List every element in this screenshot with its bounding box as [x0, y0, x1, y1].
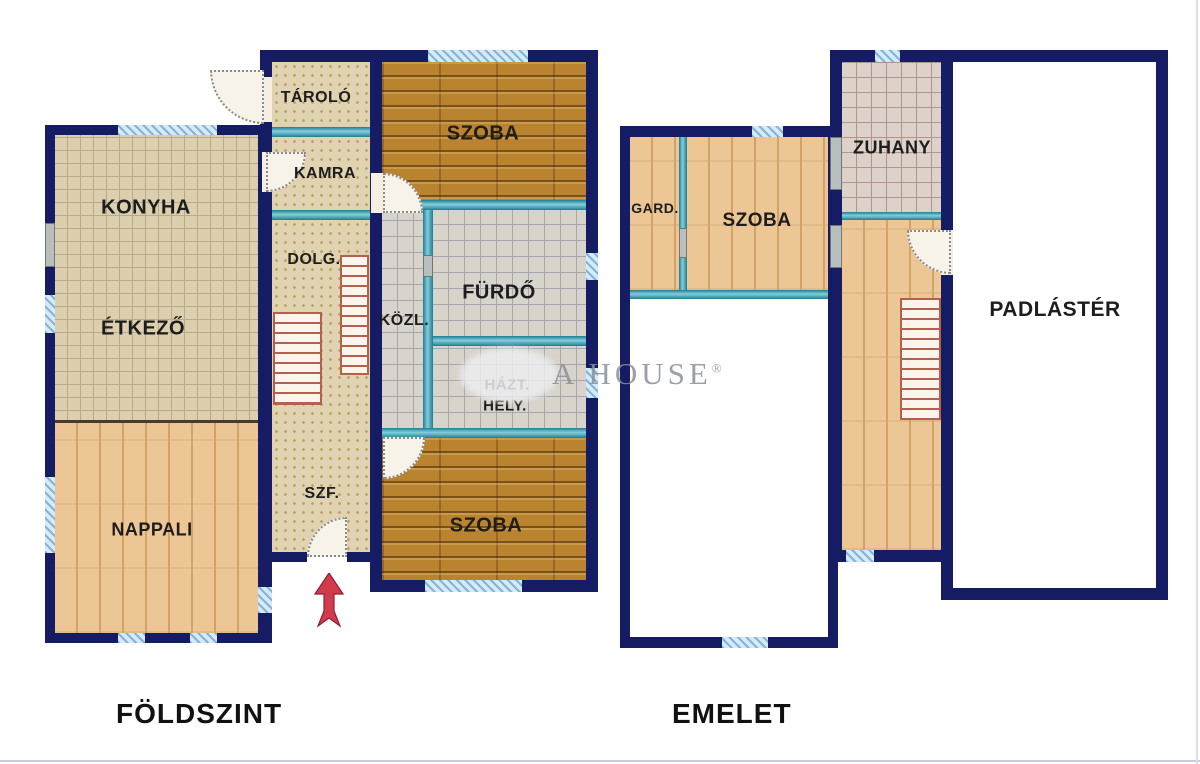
- watermark-text: A HOUSE: [552, 356, 712, 391]
- room-padlaster-floor: [953, 62, 1156, 588]
- room-label-tarolo: TÁROLÓ: [281, 89, 352, 107]
- staircase: [900, 298, 941, 420]
- wall: [260, 50, 272, 562]
- wall: [941, 50, 953, 600]
- window: [586, 253, 598, 280]
- window: [846, 550, 874, 562]
- window: [875, 50, 900, 62]
- window: [722, 637, 768, 648]
- room-konyha-etkezo-floor: [55, 135, 258, 423]
- door-swing-entrance-top: [210, 70, 264, 124]
- floor-title-emelet: EMELET: [672, 698, 792, 730]
- room-label-szoba-top: SZOBA: [447, 123, 520, 146]
- door-jamb: [830, 137, 842, 190]
- bottom-divider: [0, 760, 1200, 762]
- room-label-etkezo: ÉTKEZŐ: [101, 318, 185, 341]
- room-label-padlaster: PADLÁSTÉR: [989, 298, 1120, 322]
- room-furdo-floor: [433, 210, 586, 336]
- wall: [347, 552, 383, 562]
- partition-wall: [842, 212, 941, 220]
- door-jamb: [830, 225, 842, 268]
- wall: [45, 125, 55, 643]
- wall: [830, 50, 842, 562]
- wall: [1156, 50, 1168, 600]
- entrance-arrow-icon: [314, 573, 344, 628]
- door-opening: [371, 173, 383, 213]
- watermark-blob: [460, 348, 558, 402]
- room-label-furdo: FÜRDŐ: [462, 282, 536, 305]
- floor-title-foldszint: FÖLDSZINT: [116, 698, 282, 730]
- room-label-konyha: KONYHA: [101, 197, 191, 220]
- window: [45, 295, 55, 333]
- window: [428, 50, 528, 62]
- room-label-szf: SZF.: [305, 485, 340, 503]
- window: [118, 633, 145, 643]
- floor-plan-canvas: KONYHA ÉTKEZŐ NAPPALI TÁROLÓ KAMRA DOLG.…: [0, 0, 1200, 764]
- door-jamb: [423, 255, 433, 277]
- wall: [941, 588, 1168, 600]
- wall: [586, 50, 598, 592]
- watermark: A HOUSE®: [552, 356, 722, 392]
- wall: [620, 126, 838, 137]
- door-jamb: [679, 228, 687, 258]
- room-label-szoba-bottom: SZOBA: [450, 515, 523, 538]
- window: [118, 125, 217, 135]
- wall: [941, 50, 1168, 62]
- partition-wall: [679, 137, 687, 290]
- right-divider: [1196, 0, 1198, 764]
- wall: [260, 50, 383, 62]
- room-label-zuhany: ZUHANY: [853, 138, 931, 159]
- room-label-dolg: DOLG.: [287, 251, 340, 269]
- window: [45, 223, 55, 267]
- staircase: [273, 312, 322, 405]
- partition-wall: [630, 290, 828, 299]
- empty-area: [630, 299, 828, 637]
- staircase: [340, 255, 369, 375]
- wall: [260, 552, 307, 562]
- window: [45, 477, 55, 553]
- partition-wall: [433, 336, 586, 346]
- window: [425, 580, 522, 592]
- registered-mark: ®: [712, 361, 722, 376]
- room-label-gard: GARD.: [631, 200, 679, 216]
- room-label-kamra: KAMRA: [294, 165, 356, 183]
- partition-wall: [272, 127, 371, 137]
- window: [258, 587, 272, 613]
- window: [752, 126, 783, 137]
- wall: [45, 633, 270, 643]
- room-label-kozl: KÖZL.: [379, 312, 430, 330]
- room-label-nappali: NAPPALI: [111, 520, 192, 541]
- partition-wall: [272, 210, 371, 220]
- window: [190, 633, 217, 643]
- room-label-szoba-emelet: SZOBA: [723, 210, 792, 232]
